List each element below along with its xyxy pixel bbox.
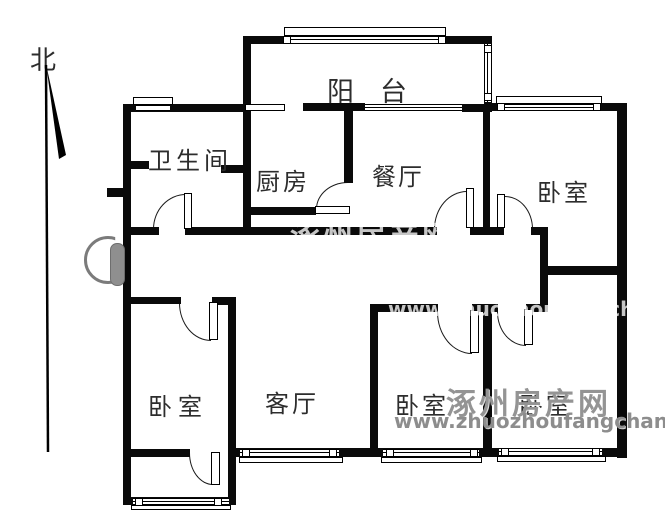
wall	[462, 104, 484, 112]
window-sill	[497, 456, 606, 462]
wall	[107, 188, 123, 197]
floor-plan: 北	[0, 0, 665, 528]
window-end	[470, 449, 478, 457]
room-label-living: 客厅	[265, 384, 319, 419]
window-end	[135, 498, 143, 506]
door-leaf	[184, 193, 192, 229]
wall	[123, 104, 131, 505]
watermark-faint-site-name: 涿州房产网	[290, 212, 455, 256]
window	[133, 97, 173, 105]
window-end	[484, 93, 492, 101]
door-arc	[505, 196, 533, 229]
window-end	[329, 449, 337, 457]
door-leaf	[209, 302, 218, 340]
watermark-faint-site-url: www.zhuozhoufangchan.com	[388, 297, 665, 321]
door-leaf	[497, 194, 505, 228]
window	[240, 449, 339, 457]
room-label-balcony: 阳台	[327, 70, 433, 109]
window-end	[438, 36, 446, 44]
entrance-door-leaf	[110, 243, 125, 286]
window	[283, 36, 446, 44]
door-arc	[316, 182, 348, 209]
wall	[243, 36, 251, 112]
window-sill	[245, 104, 285, 111]
window-sill	[381, 457, 482, 463]
room-label-bedroom-top-right: 卧室	[537, 173, 591, 208]
wall	[470, 227, 504, 235]
window-end	[501, 448, 509, 456]
window-end	[214, 498, 222, 506]
window	[497, 104, 601, 111]
wall	[131, 161, 149, 169]
wall	[344, 104, 353, 183]
door-arc	[189, 453, 213, 485]
window	[496, 96, 602, 104]
wall	[123, 227, 159, 235]
wall	[123, 449, 190, 457]
north-arrow-icon	[36, 62, 70, 456]
door-arc	[153, 194, 186, 229]
wall	[483, 104, 490, 231]
window-end	[497, 103, 505, 111]
window-end	[484, 45, 492, 53]
window	[383, 449, 479, 457]
window-end	[242, 449, 250, 457]
window-end	[386, 449, 394, 457]
window-end	[283, 36, 291, 44]
wall	[544, 266, 617, 275]
window	[284, 27, 446, 36]
wall	[617, 103, 627, 458]
wall	[228, 297, 236, 505]
window-end	[593, 103, 601, 111]
room-label-bathroom: 卫生间	[148, 141, 232, 176]
window	[136, 105, 170, 111]
wall	[370, 304, 378, 454]
room-label-kitchen: 厨房	[256, 162, 310, 197]
window-sill	[239, 457, 343, 463]
door-arc	[179, 303, 211, 341]
room-label-dining: 餐厅	[372, 157, 424, 192]
door-leaf	[211, 452, 220, 485]
wall	[123, 297, 181, 304]
window-end	[592, 448, 600, 456]
window	[499, 448, 602, 456]
wall	[243, 104, 251, 235]
room-label-bedroom-bottom-left: 卧室	[148, 387, 208, 422]
door-leaf	[466, 188, 474, 228]
watermark-site-url: www.zhuozhoufangchan.com	[394, 409, 665, 433]
